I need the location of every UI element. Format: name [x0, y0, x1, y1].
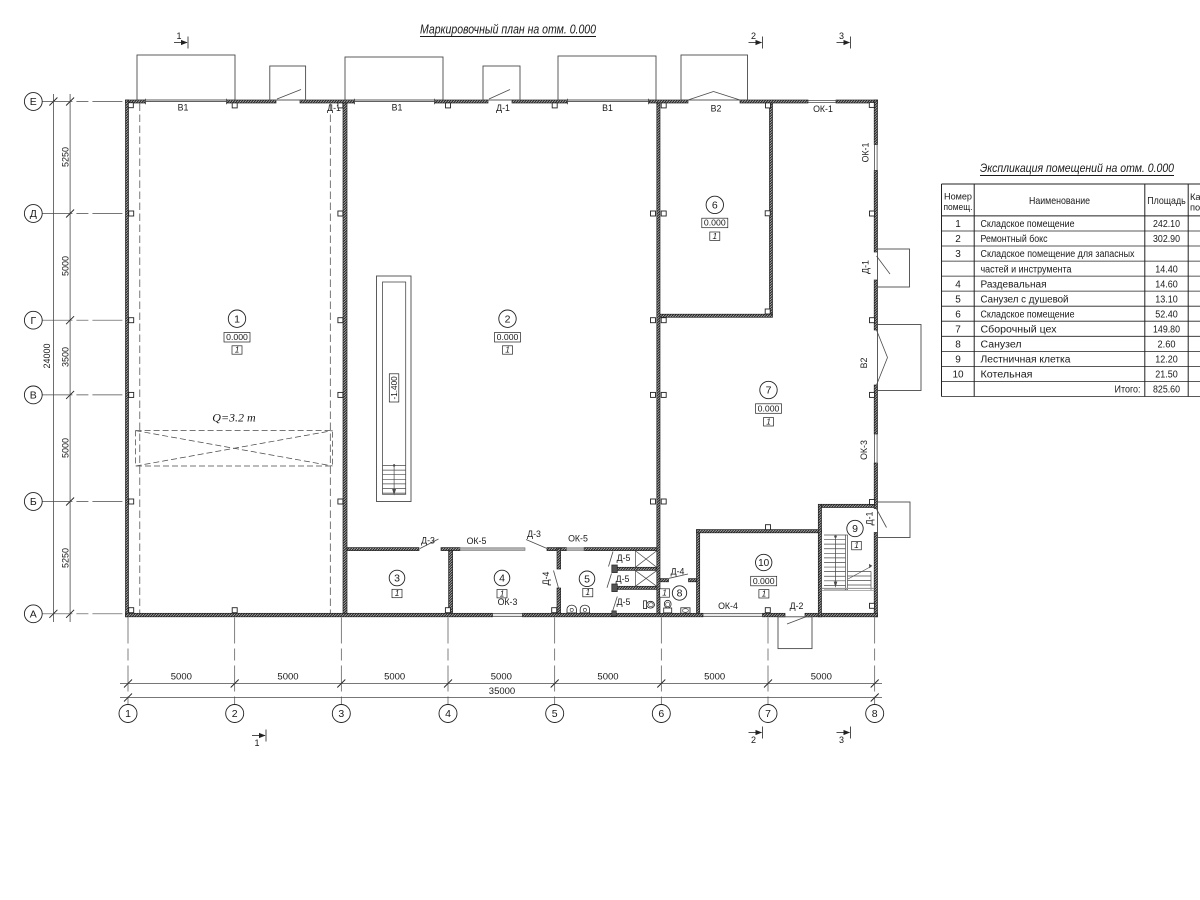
svg-text:0.000: 0.000	[704, 218, 726, 228]
svg-text:ОК-3: ОК-3	[498, 597, 518, 607]
svg-text:1: 1	[254, 738, 259, 748]
svg-text:3: 3	[338, 708, 344, 720]
svg-text:1: 1	[662, 588, 667, 598]
svg-text:10: 10	[952, 370, 964, 381]
svg-text:1: 1	[125, 708, 131, 720]
svg-text:Д-1: Д-1	[496, 103, 510, 113]
svg-text:Санузел с душевой: Санузел с душевой	[981, 294, 1069, 305]
svg-text:5000: 5000	[171, 672, 192, 683]
svg-text:5: 5	[955, 294, 961, 305]
svg-text:5000: 5000	[61, 438, 71, 458]
svg-text:1: 1	[395, 588, 400, 598]
svg-text:Q=3.2 т: Q=3.2 т	[212, 411, 256, 425]
svg-text:1: 1	[505, 345, 510, 355]
svg-text:5000: 5000	[491, 672, 512, 683]
svg-text:149.80: 149.80	[1153, 325, 1180, 336]
svg-text:5000: 5000	[277, 672, 298, 683]
svg-text:частей и инструмента: частей и инструмента	[981, 264, 1072, 275]
svg-text:Д-3: Д-3	[421, 536, 435, 546]
svg-text:Ка: Ка	[1190, 192, 1200, 202]
svg-text:12.20: 12.20	[1155, 355, 1178, 366]
svg-text:5250: 5250	[61, 147, 71, 167]
svg-text:9: 9	[852, 523, 858, 535]
svg-text:3: 3	[839, 735, 844, 745]
svg-text:Сборочный цех: Сборочный цех	[981, 324, 1057, 336]
svg-text:24000: 24000	[42, 343, 52, 368]
svg-text:Д-5: Д-5	[617, 597, 631, 607]
svg-text:ОК-5: ОК-5	[568, 534, 588, 544]
svg-text:5000: 5000	[384, 672, 405, 683]
svg-text:35000: 35000	[489, 686, 515, 697]
svg-text:Экспликация помещений на отм.: Экспликация помещений на отм. 0.000	[980, 161, 1174, 175]
svg-text:0.000: 0.000	[226, 332, 248, 342]
svg-text:14.60: 14.60	[1155, 279, 1178, 290]
svg-text:5: 5	[552, 708, 558, 720]
svg-text:2: 2	[505, 313, 511, 325]
svg-text:Д-3: Д-3	[527, 529, 541, 539]
svg-text:7: 7	[955, 325, 961, 336]
svg-text:5000: 5000	[704, 672, 725, 683]
svg-text:5000: 5000	[597, 672, 618, 683]
svg-text:Е: Е	[30, 96, 37, 108]
svg-text:Г: Г	[30, 315, 36, 327]
svg-text:2: 2	[955, 234, 961, 245]
svg-text:0.000: 0.000	[753, 576, 775, 586]
svg-text:В2: В2	[859, 358, 869, 369]
svg-text:Номер: Номер	[944, 192, 972, 202]
svg-text:В1: В1	[602, 103, 613, 113]
svg-text:ОК-5: ОК-5	[467, 536, 487, 546]
svg-text:Б: Б	[30, 496, 37, 508]
svg-text:Санузел: Санузел	[981, 340, 1022, 351]
svg-text:3500: 3500	[61, 347, 71, 367]
svg-text:Д-2: Д-2	[790, 601, 804, 611]
svg-text:8: 8	[872, 708, 878, 720]
svg-text:302.90: 302.90	[1153, 234, 1180, 245]
svg-text:Д-4: Д-4	[671, 567, 685, 577]
svg-text:0.000: 0.000	[758, 403, 780, 413]
svg-text:4: 4	[955, 279, 961, 290]
svg-text:Раздевальная: Раздевальная	[981, 279, 1047, 290]
svg-text:В1: В1	[178, 103, 189, 113]
svg-text:1: 1	[500, 588, 505, 598]
svg-text:5250: 5250	[61, 548, 71, 568]
svg-text:Котельная: Котельная	[981, 370, 1033, 381]
svg-text:242.10: 242.10	[1153, 219, 1180, 230]
svg-text:1: 1	[762, 588, 767, 598]
svg-text:Д-4: Д-4	[541, 572, 551, 586]
svg-text:7: 7	[765, 708, 771, 720]
svg-text:0.000: 0.000	[497, 332, 519, 342]
svg-text:Складское помещение для запасн: Складское помещение для запасных	[981, 249, 1135, 260]
svg-text:1: 1	[585, 587, 590, 597]
svg-text:2: 2	[751, 31, 756, 41]
svg-text:ОК-1: ОК-1	[813, 104, 833, 114]
svg-text:1: 1	[176, 31, 181, 41]
svg-text:6: 6	[955, 309, 961, 320]
svg-text:по: по	[1190, 203, 1200, 213]
svg-text:3: 3	[955, 249, 961, 260]
svg-text:Д-1: Д-1	[864, 512, 874, 526]
svg-text:5000: 5000	[61, 256, 71, 276]
svg-text:3: 3	[839, 31, 844, 41]
svg-text:2: 2	[232, 708, 238, 720]
svg-text:Итого:: Итого:	[1115, 385, 1141, 396]
svg-text:5000: 5000	[811, 672, 832, 683]
svg-text:52.40: 52.40	[1155, 309, 1178, 320]
svg-text:ОК-4: ОК-4	[718, 601, 738, 611]
svg-text:13.10: 13.10	[1155, 294, 1178, 305]
svg-text:4: 4	[445, 708, 451, 720]
svg-text:14.40: 14.40	[1155, 264, 1178, 275]
svg-text:В: В	[30, 390, 37, 402]
svg-text:6: 6	[712, 200, 718, 212]
svg-text:7: 7	[766, 385, 772, 397]
svg-text:8: 8	[955, 340, 961, 351]
svg-text:Маркировочный план на отм. 0.0: Маркировочный план на отм. 0.000	[420, 22, 597, 37]
svg-text:Д: Д	[30, 208, 37, 220]
svg-text:2.60: 2.60	[1158, 340, 1176, 351]
svg-text:825.60: 825.60	[1153, 385, 1180, 396]
svg-text:Складское помещение: Складское помещение	[981, 309, 1075, 320]
svg-text:Площадь: Площадь	[1147, 196, 1186, 207]
svg-text:1: 1	[955, 219, 961, 230]
svg-text:Наименование: Наименование	[1029, 196, 1090, 207]
svg-text:ОК-1: ОК-1	[860, 143, 870, 163]
svg-text:10: 10	[758, 558, 770, 569]
svg-text:В2: В2	[711, 104, 722, 114]
svg-text:1: 1	[234, 313, 240, 325]
svg-text:21.50: 21.50	[1155, 370, 1178, 381]
svg-text:2: 2	[751, 735, 756, 745]
svg-text:Д-1: Д-1	[861, 260, 871, 274]
svg-text:9: 9	[955, 355, 961, 366]
svg-text:1: 1	[235, 345, 240, 355]
svg-text:8: 8	[677, 588, 683, 600]
svg-text:В1: В1	[392, 103, 403, 113]
svg-text:1: 1	[712, 231, 717, 241]
svg-text:ОК-3: ОК-3	[859, 440, 869, 460]
svg-text:А: А	[30, 609, 37, 621]
svg-text:Складское помещение: Складское помещение	[981, 219, 1075, 230]
svg-text:Д-5: Д-5	[617, 553, 631, 563]
svg-text:6: 6	[658, 708, 664, 720]
svg-text:4: 4	[499, 573, 505, 585]
svg-text:1: 1	[854, 540, 859, 550]
svg-text:-1.400: -1.400	[390, 376, 399, 400]
svg-text:Д-5: Д-5	[616, 574, 630, 584]
svg-text:5: 5	[584, 573, 590, 585]
svg-text:помещ.: помещ.	[944, 202, 973, 212]
svg-text:Лестничная клетка: Лестничная клетка	[981, 355, 1071, 366]
svg-text:Ремонтный бокс: Ремонтный бокс	[981, 233, 1048, 245]
svg-text:3: 3	[394, 573, 400, 585]
svg-text:1: 1	[766, 416, 771, 426]
